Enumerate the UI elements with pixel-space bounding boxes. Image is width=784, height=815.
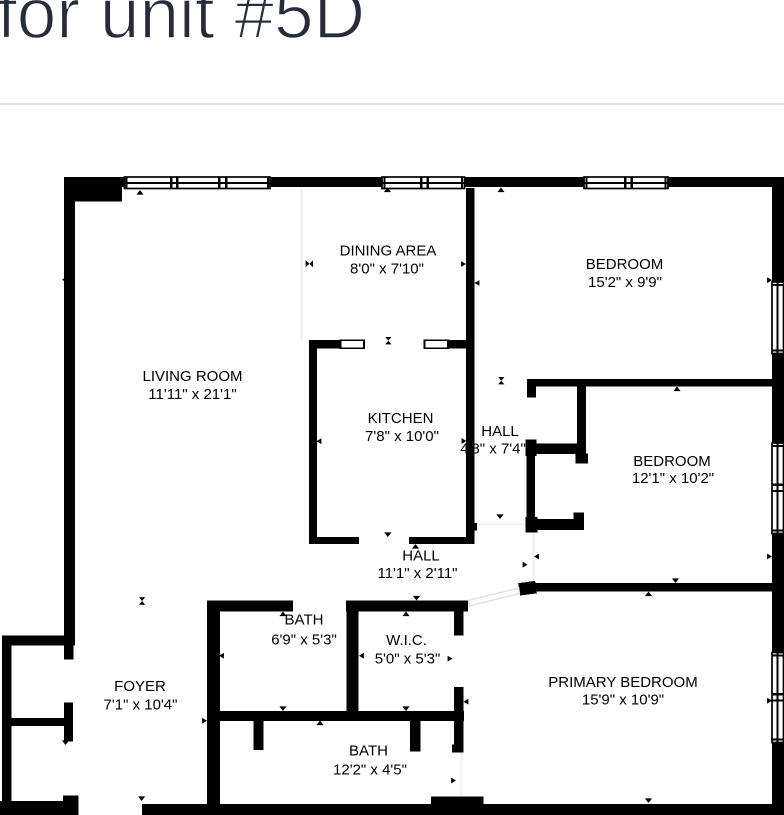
svg-text:6'9" x 5'3": 6'9" x 5'3" [271, 632, 337, 649]
svg-text:KITCHEN: KITCHEN [368, 410, 434, 427]
svg-text:7'1" x 10'4": 7'1" x 10'4" [104, 697, 178, 714]
svg-text:BATH: BATH [349, 743, 388, 760]
svg-text:5'0" x 5'3": 5'0" x 5'3" [375, 651, 441, 668]
svg-text:FOYER: FOYER [114, 678, 166, 695]
svg-text:11'1" x 2'11": 11'1" x 2'11" [377, 565, 457, 582]
svg-text:15'2" x 9'9": 15'2" x 9'9" [588, 274, 662, 291]
svg-text:W.I.C.: W.I.C. [386, 632, 427, 649]
svg-text:LIVING ROOM: LIVING ROOM [142, 368, 242, 385]
svg-text:8'0" x 7'10": 8'0" x 7'10" [350, 261, 424, 278]
svg-text:PRIMARY BEDROOM: PRIMARY BEDROOM [548, 674, 697, 691]
svg-text:DINING AREA: DINING AREA [340, 243, 437, 260]
svg-text:12'1" x 10'2": 12'1" x 10'2" [632, 470, 714, 487]
svg-text:11'11" x 21'1": 11'11" x 21'1" [148, 386, 236, 403]
svg-text:15'9" x 10'9": 15'9" x 10'9" [582, 692, 664, 709]
svg-text:BEDROOM: BEDROOM [586, 256, 664, 273]
svg-text:HALL: HALL [481, 423, 519, 440]
svg-text:HALL: HALL [402, 548, 440, 565]
svg-text:7'8" x 10'0": 7'8" x 10'0" [365, 428, 439, 445]
svg-text:BATH: BATH [285, 612, 324, 629]
svg-text:BEDROOM: BEDROOM [633, 453, 711, 470]
svg-text:12'2" x 4'5": 12'2" x 4'5" [333, 762, 407, 779]
